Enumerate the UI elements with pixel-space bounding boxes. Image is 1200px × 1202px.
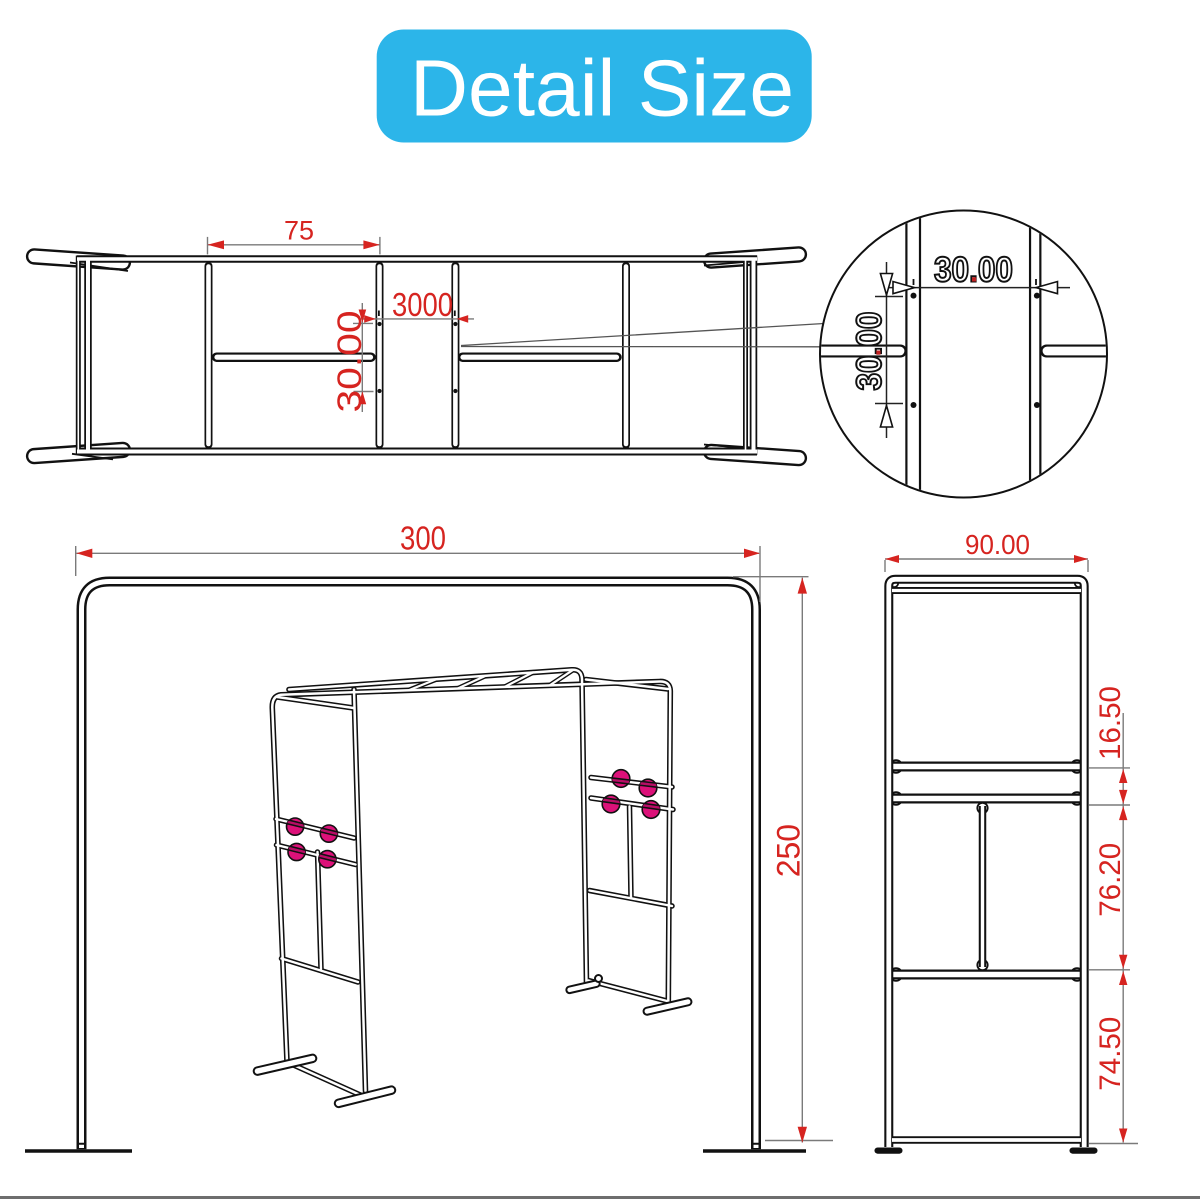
svg-text:16.50: 16.50	[1094, 686, 1127, 760]
svg-text:30.00: 30.00	[850, 312, 889, 391]
svg-text:90.00: 90.00	[965, 529, 1030, 560]
svg-text:76.20: 76.20	[1094, 843, 1127, 917]
svg-text:74.50: 74.50	[1094, 1017, 1127, 1091]
svg-text:250: 250	[771, 824, 807, 877]
svg-text:75: 75	[284, 216, 314, 246]
svg-text:Detail Size: Detail Size	[410, 44, 794, 133]
svg-text:30.00: 30.00	[934, 251, 1013, 290]
svg-text:30.00: 30.00	[331, 311, 369, 413]
svg-text:3000: 3000	[392, 286, 453, 323]
svg-text:300: 300	[400, 520, 446, 557]
